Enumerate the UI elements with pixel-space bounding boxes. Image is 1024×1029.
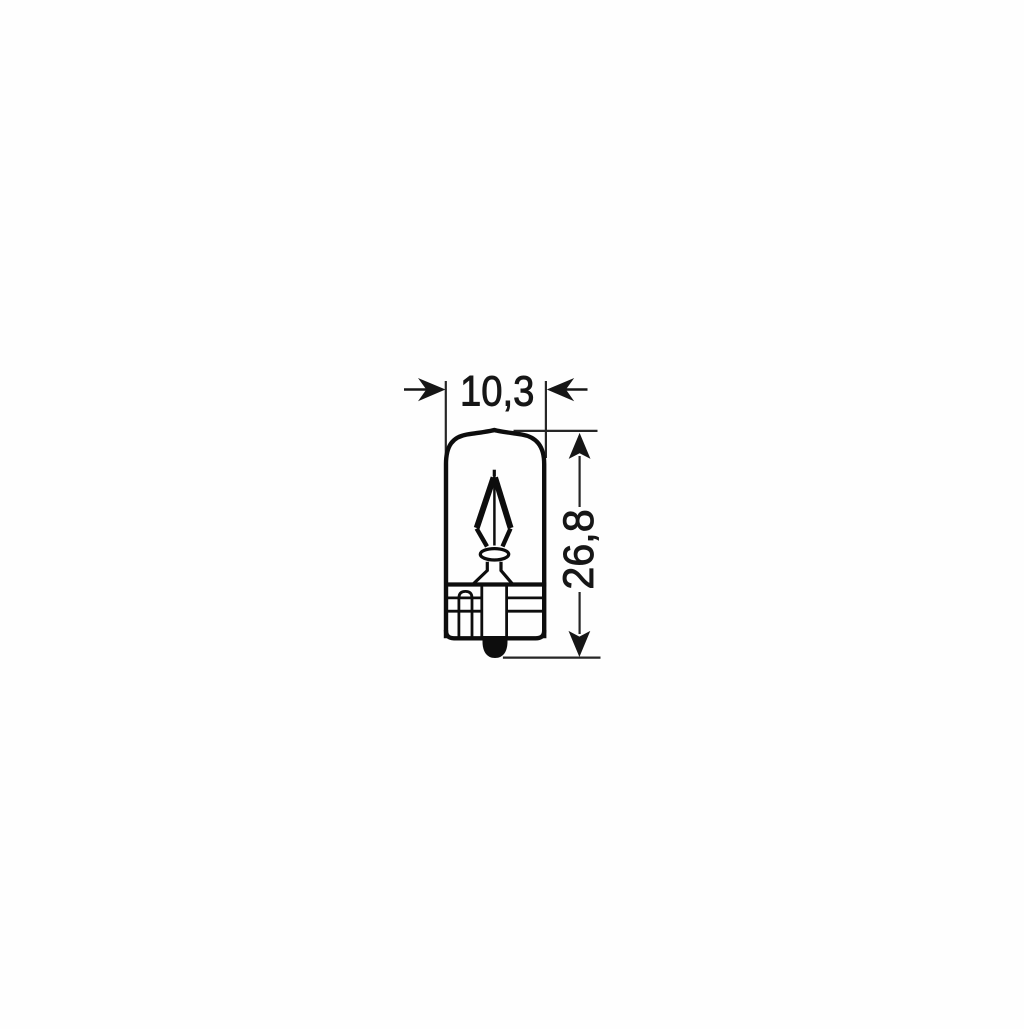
svg-text:26,8: 26,8 xyxy=(555,509,603,589)
svg-text:10,3: 10,3 xyxy=(460,367,534,415)
